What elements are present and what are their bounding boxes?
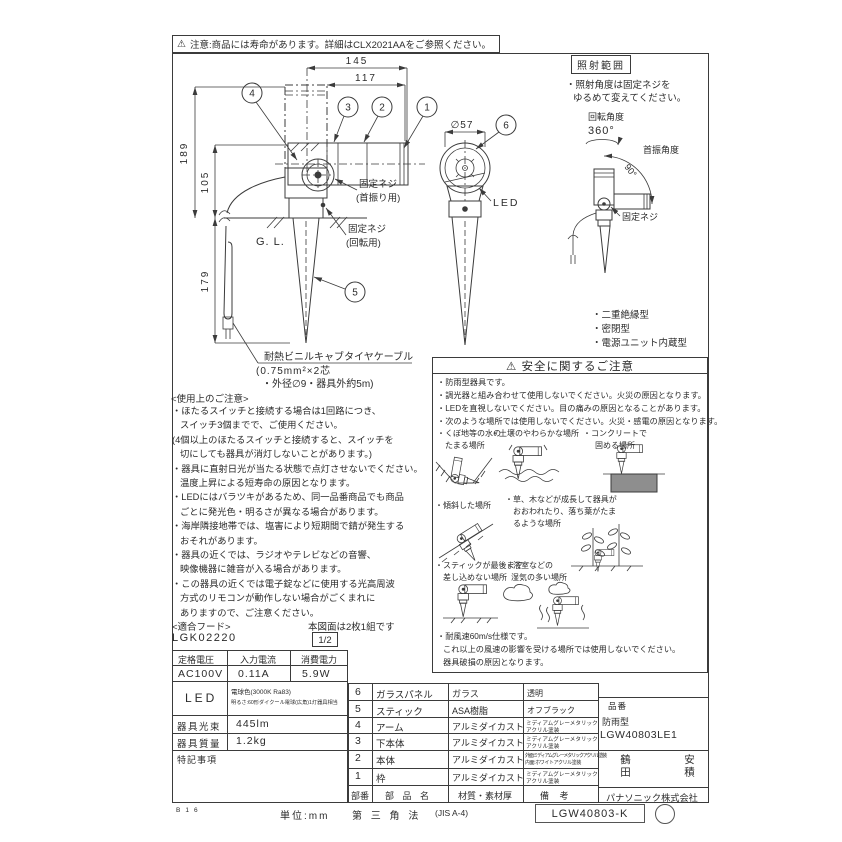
usage-line: スイッチ3個までで、ご使用ください。: [172, 418, 423, 432]
part-material: ガラス: [452, 687, 479, 700]
screw-labels: 固定ネジ (首振り用) 固定ネジ (回転用): [326, 178, 400, 249]
model-type: 防雨型: [602, 715, 629, 728]
balloon-2: 2: [379, 103, 385, 114]
balloon-6: 6: [503, 121, 509, 132]
parts-header-material: 材質・素材厚: [458, 789, 512, 802]
usage-line: ありますので、ご注意ください。: [172, 606, 423, 620]
sheet-number: 1/2: [312, 632, 338, 647]
document-number-box: LGW40803-K: [535, 804, 645, 823]
loc-concrete-text: ・コンクリートで: [583, 428, 647, 439]
swing-angle-value: 90°: [622, 162, 639, 179]
balloon-5: 5: [352, 288, 358, 299]
company-name: パナソニック株式会社: [606, 790, 698, 804]
beam-range-title: 照射範囲: [571, 55, 631, 74]
approval-stamp-right: 安積: [682, 754, 697, 786]
part-remark: オフブラック: [527, 705, 575, 716]
feature-built-in-power: ・電源ユニット内蔵型: [592, 335, 687, 349]
part-name: 下本体: [376, 736, 405, 750]
part-no: 3: [355, 735, 361, 747]
lamp-body-side: [285, 168, 327, 343]
hood-model: LGK02220: [172, 632, 237, 644]
cable-note: 耐熱ビニルキャブタイヤケーブル (0.75mm²×2芯 ・外径∅9・器具外約5m…: [233, 323, 413, 390]
spec-voltage: AC100V: [178, 668, 223, 680]
part-no: 1: [355, 770, 361, 782]
illustration-bath: [497, 582, 592, 632]
dim-179: 179: [200, 270, 211, 293]
illustration-soft-soil: [497, 444, 563, 496]
loc-slope-text: ・傾斜した場所: [435, 500, 491, 511]
warning-icon: ⚠: [177, 39, 186, 50]
part-material: ASA樹脂: [452, 704, 488, 717]
rotation-angle-label: 回転角度: [588, 111, 624, 122]
usage-line: ・ほたるスイッチと接続する場合は1回路につき、: [172, 404, 423, 418]
balloon-4: 4: [249, 89, 255, 100]
spec-flux-value: 445lm: [236, 718, 270, 730]
part-no: 2: [355, 752, 361, 764]
usage-line: 方式のリモコンが動作しない場合がごくまれに: [172, 591, 423, 605]
part-remark2: アクリル塗装: [526, 777, 559, 785]
power-cable: [219, 177, 285, 339]
approval-stamp-left: 鶴田: [618, 754, 633, 786]
spec-header-voltage: 定格電圧: [178, 653, 214, 666]
part-material: アルミダイカスト: [452, 753, 524, 766]
cable-note-line2: (0.75mm²×2芯: [256, 364, 331, 377]
dim-145: 145: [346, 56, 369, 67]
spec-notes-label: 特記事項: [177, 753, 217, 766]
part-material: アルミダイカスト: [452, 736, 524, 749]
balloon-1: 1: [424, 103, 430, 114]
usage-line: 切にしても器具が消灯しないことがあります。): [172, 447, 423, 461]
usage-notes-list: ・ほたるスイッチと接続する場合は1回路につき、 スイッチ3個までで、ご使用くださ…: [172, 404, 423, 620]
model-label: 品番: [608, 700, 627, 712]
spec-power: 5.9W: [302, 668, 331, 680]
spec-weight-value: 1.2kg: [236, 735, 267, 747]
part-name: ガラスパネル: [376, 687, 433, 701]
gl-label: G. L.: [256, 236, 285, 248]
safety-notes-box: ⚠ 安全に関するご注意 ・防雨型器具です。 ・調光器と組み合わせて使用しないでく…: [432, 357, 708, 673]
fix-screw-rotate-label: 固定ネジ: [348, 223, 386, 235]
part-material: アルミダイカスト: [452, 720, 524, 733]
parts-header-no: 部番: [351, 789, 369, 802]
drawing-sheet: ⚠ 注意:商品には寿命があります。詳細はCLX2021AAをご参照ください。 1…: [0, 0, 842, 842]
footer-sheet-size: (JIS A-4): [435, 808, 468, 818]
lifetime-warning-box: ⚠ 注意:商品には寿命があります。詳細はCLX2021AAをご参照ください。: [172, 35, 500, 53]
beam-range-figure: 回転角度 360° 首振角度 90° 固定ネジ: [558, 103, 710, 303]
dim-189: 189: [179, 142, 190, 165]
fix-screw-swing-label: 固定ネジ: [359, 178, 397, 190]
front-view: ∅57 LED: [440, 120, 519, 345]
rotation-angle-value: 360°: [588, 125, 615, 137]
part-name: アーム: [376, 720, 404, 734]
hood-label: <適合フード>: [172, 619, 231, 633]
usage-line: ・この器具の近くでは電子錠などに使用する光高周波: [172, 577, 423, 591]
part-no: 4: [355, 719, 361, 731]
part-no: 6: [355, 686, 361, 698]
usage-line: ・器具の近くでは、ラジオやテレビなどの音響、: [172, 548, 423, 562]
loc-soil-text: ・土壌のやわらかな場所: [491, 428, 579, 439]
usage-line: おそれがあります。: [172, 534, 423, 548]
safety-title: ⚠ 安全に関するご注意: [433, 358, 707, 374]
loc-plants-text: ・草、木などが成長して器具が: [505, 494, 617, 505]
footer-code: B16: [176, 807, 203, 814]
safety-line: ・防雨型器具です。: [437, 376, 510, 388]
fix-screw-swing-sub: (首振り用): [356, 192, 400, 204]
lamp-head-side: [275, 68, 425, 185]
spec-led-label: LED: [185, 691, 217, 705]
safety-title-text: 安全に関するご注意: [522, 361, 635, 373]
spec-led-brightness: 明るさ:60形ダイクール電球(広角)1灯器具相当: [231, 699, 338, 706]
main-drawing: 145 117 189 105 179: [172, 55, 565, 400]
illustration-slope: [437, 512, 497, 562]
part-remark2: アクリル塗装: [526, 726, 559, 734]
usage-line: ・海岸隣接地帯では、塩害により短期間で錆が発生する: [172, 519, 423, 533]
sheet-set-note: 本図面は2枚1組です: [308, 619, 395, 633]
spec-weight-label: 器具質量: [177, 736, 221, 750]
footer-unit: 単位:mm: [280, 807, 329, 822]
safety-warning-icon: ⚠: [506, 361, 517, 373]
illustration-hollow-place: [435, 450, 493, 496]
wind-spec-line1: ・耐風速60m/s仕様です。: [437, 630, 532, 642]
model-number: LGW40803LE1: [600, 729, 677, 741]
footer-projection: 第 三 角 法: [352, 807, 421, 822]
dim-dia57: ∅57: [451, 120, 474, 131]
usage-line: (4個以上のほたるスイッチと接続すると、スイッチを: [172, 433, 423, 447]
lamp-raised-phantom: [285, 85, 327, 168]
spec-header-power: 消費電力: [301, 653, 337, 666]
led-label: LED: [493, 197, 519, 209]
part-material: アルミダイカスト: [452, 771, 524, 784]
swing-angle-label: 首振角度: [643, 144, 679, 155]
wind-spec-line3: 器具破損の原因となります。: [443, 656, 548, 668]
usage-line: ごとに発光色・明るさが異なる場合があります。: [172, 505, 423, 519]
loc-plants-text3: るような場所: [513, 518, 561, 529]
spec-led-color: 電球色(3000K Ra83): [231, 686, 291, 696]
part-remark2: 内面:ホワイトアクリル塗装: [525, 759, 581, 766]
beam-fix-screw-label: 固定ネジ: [622, 211, 658, 222]
spec-flux-label: 器具光束: [177, 719, 221, 733]
dim-117: 117: [355, 73, 377, 84]
feature-sealed: ・密閉型: [592, 321, 630, 335]
dim-105: 105: [200, 171, 211, 194]
illustration-concrete: [603, 450, 665, 496]
cable-note-line1: 耐熱ビニルキャブタイヤケーブル: [264, 350, 413, 363]
part-name: 本体: [376, 753, 395, 767]
safety-line: ・調光器と組み合わせて使用しないでください。火災の原因となります。: [437, 389, 706, 401]
loc-plants-text2: おおわれたり、落ち葉がたま: [513, 506, 616, 517]
part-no: 5: [355, 703, 361, 715]
illustration-plants: [571, 520, 643, 572]
usage-line: 映像機器に雑音が入る場合があります。: [172, 562, 423, 576]
illustration-stick: [443, 584, 498, 634]
part-remark: 外面:ミディアムグレーメタリックアクリル塗装: [525, 752, 606, 759]
parts-header-name: 部 品 名: [385, 789, 432, 802]
parts-header-remark: 備 考: [540, 789, 573, 802]
usage-notes-title: <使用上のご注意>: [171, 391, 249, 405]
warning-text: 注意:商品には寿命があります。詳細はCLX2021AAをご参照ください。: [190, 37, 491, 51]
part-remark: 透明: [527, 688, 543, 699]
loc-bath-text: ・浴室などの: [505, 560, 553, 571]
cable-note-line3: ・外径∅9・器具外約5m): [262, 377, 374, 390]
safety-line: ・次のような場所では使用しないでください。火災・感電の原因となります。: [437, 415, 722, 427]
beam-note-line2: ゆるめて変えてください。: [573, 90, 686, 104]
feature-double-insulation: ・二重絶縁型: [592, 307, 649, 321]
part-remark2: アクリル塗装: [526, 742, 559, 750]
swivel-knob: [302, 159, 334, 191]
balloon-3: 3: [345, 103, 351, 114]
spec-header-current: 入力電流: [240, 653, 276, 666]
part-name: 枠: [376, 771, 386, 785]
beam-note-line1: ・照射角度は固定ネジを: [566, 77, 671, 91]
usage-line: 温度上昇による短寿命の原因となります。: [172, 476, 423, 490]
revision-circle: [655, 804, 675, 824]
spec-current: 0.11A: [238, 668, 270, 680]
usage-line: ・LEDにはバラツキがあるため、同一品番商品でも商品: [172, 490, 423, 504]
usage-line: ・器具に直射日光が当たる状態で点灯させないでください。: [172, 462, 423, 476]
wind-spec-line2: これ以上の風速の影響を受ける場所では使用しないでください。: [443, 643, 680, 655]
fix-screw-rotate-sub: (回転用): [346, 238, 381, 249]
safety-line: ・LEDを直視しないでください。目の痛みの原因となることがあります。: [437, 402, 705, 414]
part-name: スティック: [376, 704, 423, 718]
